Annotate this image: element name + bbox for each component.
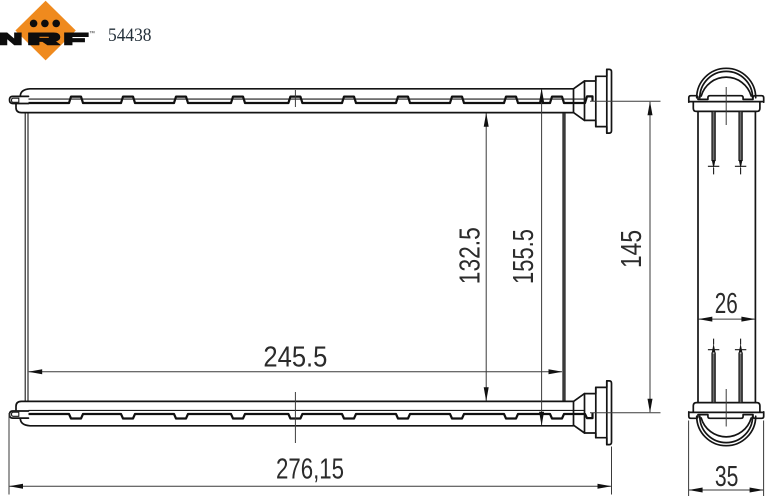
svg-text:155.5: 155.5 (508, 229, 540, 284)
svg-text:145: 145 (616, 230, 648, 268)
svg-text:276,15: 276,15 (276, 454, 344, 486)
svg-text:132.5: 132.5 (455, 227, 487, 284)
svg-text:™: ™ (89, 30, 95, 37)
svg-text:245.5: 245.5 (263, 342, 327, 374)
svg-text:54438: 54438 (108, 25, 152, 46)
svg-text:26: 26 (715, 288, 738, 320)
svg-text:35: 35 (715, 461, 739, 493)
